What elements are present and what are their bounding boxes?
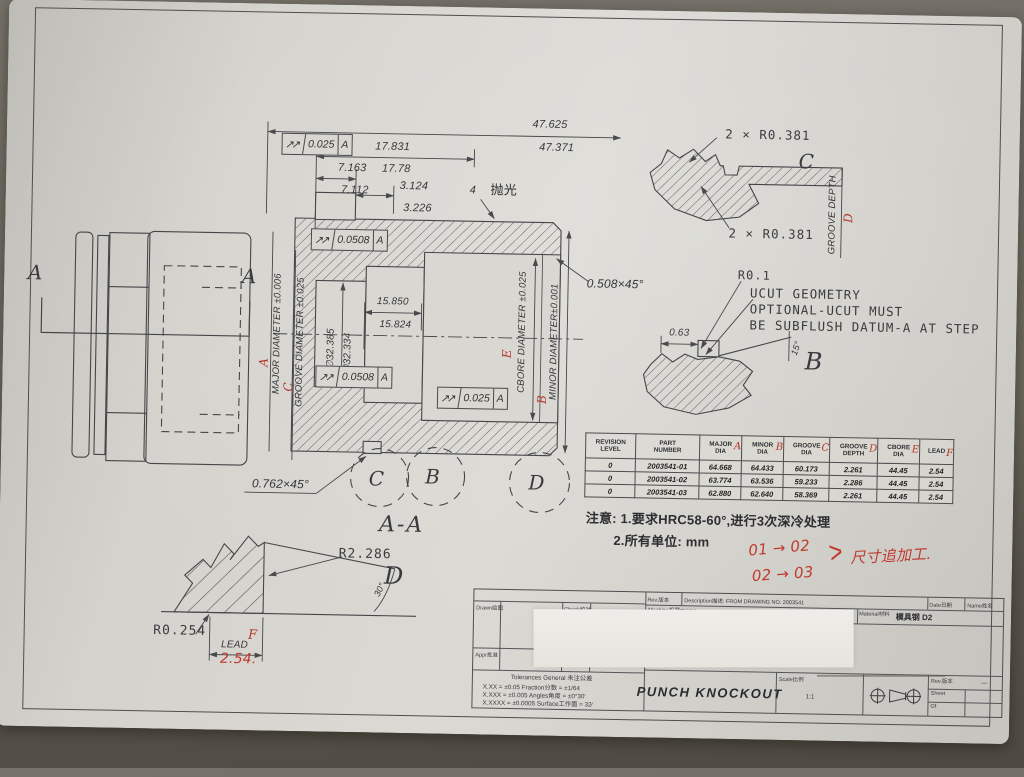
groove-radius-top: 2 × R0.381 [725, 126, 811, 143]
material-value: 模具钢 D2 [896, 612, 933, 624]
note-1: 1.要求HRC58-60°,进行3次深冷处理 [620, 511, 830, 530]
lead-label: LEAD [221, 639, 248, 650]
gdt-frame-4: ↗↗ 0.025 A [437, 387, 508, 410]
spec-table: REVISIONLEVEL PARTNUMBER MAJORDIAA MINOR… [584, 432, 954, 504]
dim-overall-lower: 47.371 [539, 141, 574, 154]
red-mark-f: F [248, 628, 257, 643]
red-note-text: 尺寸追加工. [850, 543, 932, 568]
note-2: 2.所有单位: mm [613, 530, 709, 551]
rev-label: Rev.版本 [647, 596, 669, 604]
dim-15-upper: 15.850 [377, 296, 409, 308]
rev-value: — [981, 680, 987, 687]
dim-3-upper: 3.124 [400, 180, 429, 193]
groove-c-label: C [798, 149, 814, 173]
material-label: Material材料 [859, 609, 890, 618]
gdt-datum: A [494, 389, 507, 409]
total-runout-icon: ↗↗ [310, 229, 336, 249]
gdt-tolerance: 0.0508 [339, 367, 378, 388]
rev2-label: Rev.版本 [931, 677, 953, 685]
groove-depth-label: GROOVE DEPTH [826, 175, 838, 254]
dim-17-upper: 17.831 [375, 140, 410, 153]
handwritten-lead-value: 2.54. [220, 651, 257, 668]
dim-17-lower: 17.78 [382, 163, 411, 176]
cbore-diameter-label: CBORE DIAMETER ±0.025 [516, 271, 529, 393]
lead-radius-big: R2.286 [339, 546, 392, 562]
polish-note: 抛光 [490, 179, 517, 198]
total-runout-icon: ↗↗ [436, 388, 462, 408]
section-title: A-A [379, 512, 425, 538]
of-label: Of [930, 704, 936, 710]
photographed-drawing-sheet: A A A-A 47.625 47.371 17.831 17.78 7.163… [0, 0, 1024, 777]
ucut-radius: R0.1 [738, 268, 771, 283]
major-diameter-label: MAJOR DIAMETER ±0.006 [271, 273, 284, 394]
ucut-note-line1: UCUT GEOMETRY [750, 285, 861, 302]
chamfer-right-label: 0.508×45° [587, 276, 644, 291]
datum-circle-d: D [528, 470, 545, 494]
dim-7-upper: 7.163 [338, 162, 367, 175]
dim-overall-upper: 47.625 [533, 118, 568, 131]
notes-title: 注意: [586, 510, 617, 526]
gdt-tolerance: 0.025 [460, 388, 494, 409]
lead-d-label: D [384, 562, 404, 590]
gdt-frame-1: ↗↗ 0.025 A [281, 133, 352, 156]
lead-radius-small: R0.254 [153, 623, 206, 639]
gdt-datum: A [373, 230, 386, 250]
gdt-tolerance: 0.0508 [334, 230, 373, 251]
drawn-label: Drawn绘图 [476, 603, 503, 611]
gdt-frame-2: ↗↗ 0.0508 A [311, 228, 388, 251]
datum-circle-b: B [425, 464, 440, 488]
tolerance-line-3: X.XXXX = ±0.0005 Surface工作面 = 32∕ [482, 698, 592, 709]
dim-15-lower: 15.824 [379, 319, 411, 331]
section-arrow-a-left: A [28, 260, 43, 284]
ucut-b-label: B [805, 347, 823, 375]
groove-radius-bottom: 2 × R0.381 [728, 225, 814, 242]
red-mark-d: D [841, 213, 855, 223]
scale-value: 1:1 [806, 693, 815, 700]
gdt-frame-3: ↗↗ 0.0508 A [315, 365, 392, 388]
scale-label: Scale比例 [779, 675, 804, 683]
section-arrow-a-right: A [242, 264, 257, 288]
sheet-label: Sheet [931, 691, 945, 697]
gdt-datum: A [338, 135, 351, 155]
minor-diameter-label: MINOR DIAMETER±0.001 [547, 283, 560, 400]
polish-number: 4 [470, 184, 477, 196]
total-runout-icon: ↗↗ [281, 134, 307, 154]
red-mark-b: B [535, 395, 549, 404]
appr-label: Appr批准 [475, 650, 498, 658]
crossed-out-text [817, 675, 945, 677]
dim-3-lower: 3.226 [403, 202, 432, 215]
red-mark-e: E [500, 349, 514, 358]
dim-7-lower: 7.112 [341, 184, 369, 197]
chamfer-left-label: 0.762×45° [252, 476, 309, 491]
tolerances-title: Tolerances General 未注公差 [511, 672, 593, 682]
date-label: Date日期 [929, 601, 952, 609]
gdt-tolerance: 0.025 [305, 134, 339, 155]
third-angle-projection-icon [869, 686, 921, 707]
red-mark-c: C [281, 382, 295, 391]
dim-dia-upper: ∅32.385 [325, 328, 337, 369]
redaction-tape [534, 609, 854, 667]
name-label: Name姓名 [967, 601, 993, 609]
drawing-title: PUNCH KNOCKOUT [637, 684, 783, 702]
gdt-datum: A [378, 368, 391, 388]
red-mark-a: A [257, 358, 271, 367]
side-view [39, 229, 251, 465]
datum-circle-c: C [369, 466, 385, 490]
total-runout-icon: ↗↗ [315, 366, 341, 386]
ucut-width: 0.63 [669, 327, 689, 338]
ucut-note-line2: OPTIONAL-UCUT MUST [750, 301, 904, 319]
